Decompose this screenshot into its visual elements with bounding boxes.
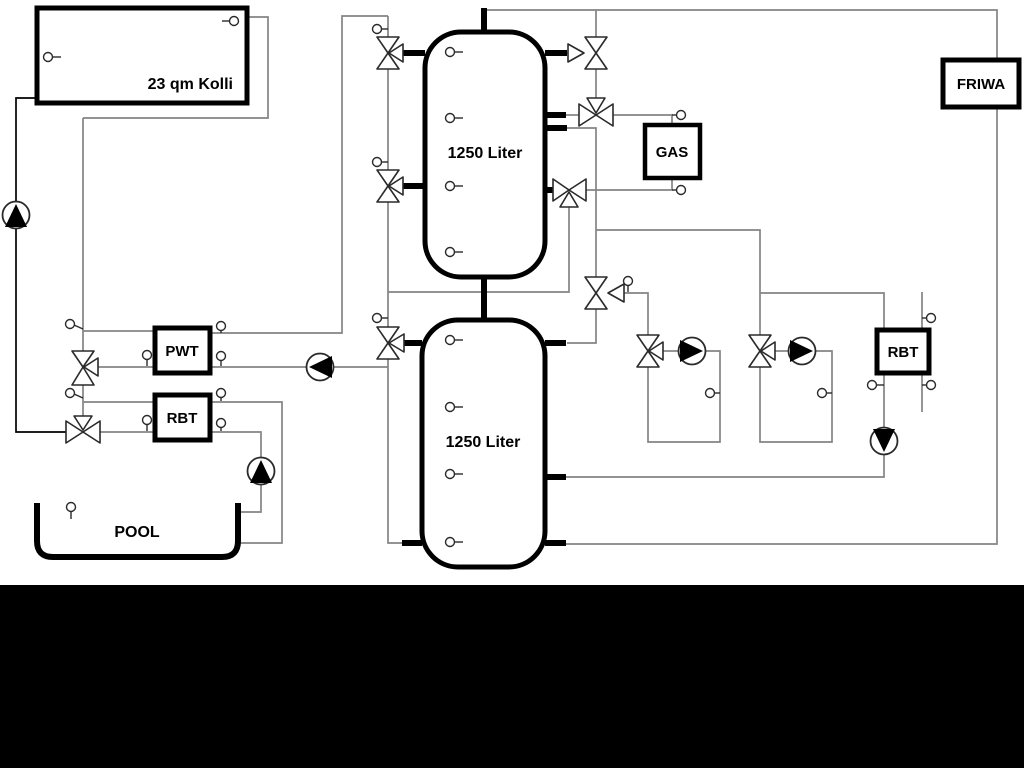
sensor-valve-h	[373, 25, 389, 34]
gas-boiler: GAS	[645, 125, 700, 178]
schematic-page: 23 qm Kolli 1250 Liter 1250 Liter GAS FR…	[0, 0, 1024, 768]
valve-pwt-mixing	[72, 351, 98, 385]
sensor-rbt-left-3	[217, 389, 226, 402]
heating-schematic: 23 qm Kolli 1250 Liter 1250 Liter GAS FR…	[0, 0, 1024, 768]
pipes-black	[16, 98, 66, 432]
sensor-rbt-left-2	[143, 416, 152, 432]
rbt-right-pump	[871, 428, 898, 455]
sensor-gas-bottom	[672, 186, 686, 195]
bottom-black-bar	[0, 585, 1024, 768]
valve-distribution	[585, 277, 624, 309]
collector-label: 23 qm Kolli	[148, 76, 233, 93]
rbt-left-heat-exchanger: RBT	[155, 395, 210, 440]
friwa-label: FRIWA	[957, 76, 1005, 93]
pool-pump	[248, 458, 275, 485]
valve-gas-return	[553, 179, 586, 207]
valve-tank1-top-left	[377, 37, 403, 69]
tank2-label: 1250 Liter	[446, 434, 521, 451]
rbt-right-label: RBT	[888, 344, 919, 361]
pwt-charge-pump	[307, 354, 334, 381]
valve-circuit-1	[637, 335, 663, 367]
pwt-label: PWT	[165, 343, 198, 360]
valve-tank1-mid-left	[377, 170, 403, 202]
valve-pool-mixing	[66, 416, 100, 443]
sensor-pwt-left-bottom	[143, 351, 152, 367]
rbt-right-heat-exchanger: RBT	[877, 330, 929, 373]
sensor-bypass-bottom	[922, 381, 936, 390]
sensor-valve-g	[373, 314, 389, 323]
gas-label: GAS	[656, 144, 689, 161]
sensor-circuit-2	[818, 389, 833, 398]
sensor-rbt-left-4	[217, 419, 226, 432]
tank1-label: 1250 Liter	[448, 145, 523, 162]
heating-circuit-pump-1	[679, 338, 706, 365]
sensor-rbt-right-return	[868, 381, 885, 390]
valve-gas-supply	[579, 98, 613, 126]
sensor-circuit-1	[706, 389, 721, 398]
pwt-heat-exchanger: PWT	[155, 328, 210, 373]
heating-circuit-pump-2	[789, 338, 816, 365]
sensor-bypass-top	[922, 314, 936, 323]
buffer-tank-1: 1250 Liter	[425, 32, 545, 277]
pool-label: POOL	[114, 524, 160, 541]
friwa-station: FRIWA	[943, 60, 1019, 107]
valve-circuit-2	[749, 335, 775, 367]
solar-pump	[3, 202, 30, 229]
sensor-pwt-right-bottom	[217, 352, 226, 367]
buffer-tank-2: 1250 Liter	[422, 320, 545, 567]
rbt-left-label: RBT	[167, 410, 198, 427]
sensor-rbt-left-1	[66, 389, 84, 399]
sensor-pwt-right-top	[217, 322, 226, 334]
sensor-gas-top	[672, 111, 686, 120]
pool-basin: POOL	[37, 503, 238, 557]
valve-tank1-top-right	[568, 37, 607, 69]
solar-collector: 23 qm Kolli	[37, 8, 247, 103]
sensor-valve-i	[373, 158, 389, 167]
sensor-distribution	[624, 277, 633, 293]
sensor-pool	[67, 503, 76, 520]
sensor-pwt-left-top	[66, 320, 84, 330]
valve-tank2-left	[377, 327, 404, 359]
